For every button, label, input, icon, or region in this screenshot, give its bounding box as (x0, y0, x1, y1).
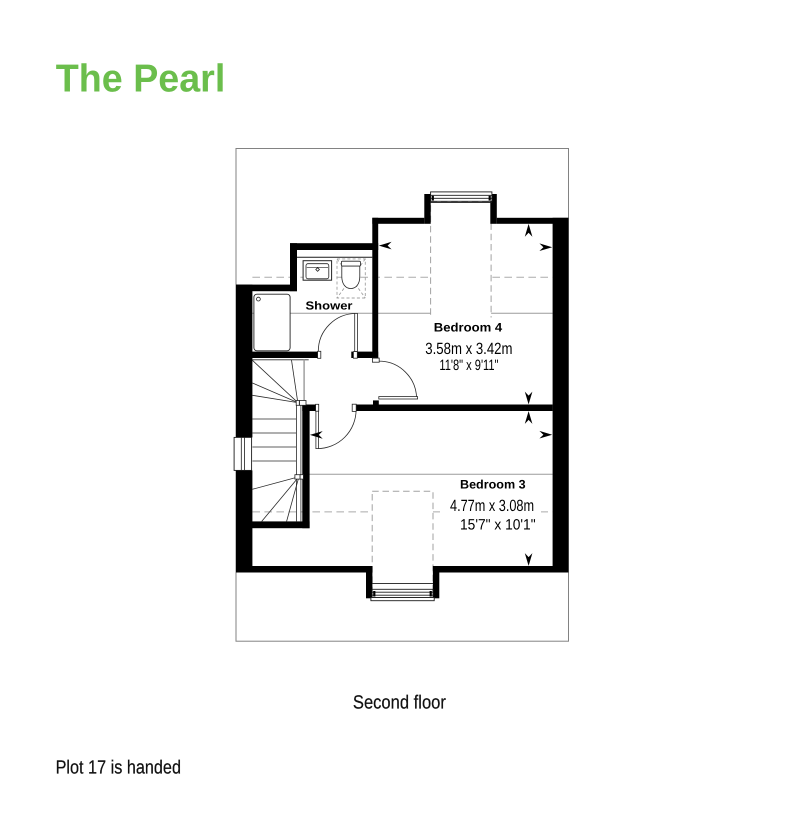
svg-text:Shower: Shower (306, 300, 354, 313)
svg-text:Bedroom 4: Bedroom 4 (434, 321, 503, 335)
svg-text:15'7" x 10'1": 15'7" x 10'1" (460, 517, 536, 534)
svg-text:The Pearl: The Pearl (56, 58, 226, 101)
svg-text:Bedroom 3: Bedroom 3 (460, 478, 526, 492)
svg-text:3.58m x 3.42m: 3.58m x 3.42m (425, 340, 512, 358)
svg-text:11'8" x 9'11": 11'8" x 9'11" (439, 357, 498, 374)
svg-text:Second floor: Second floor (353, 692, 447, 713)
svg-text:4.77m x 3.08m: 4.77m x 3.08m (450, 497, 534, 515)
svg-text:Plot 17 is handed: Plot 17 is handed (56, 758, 181, 779)
